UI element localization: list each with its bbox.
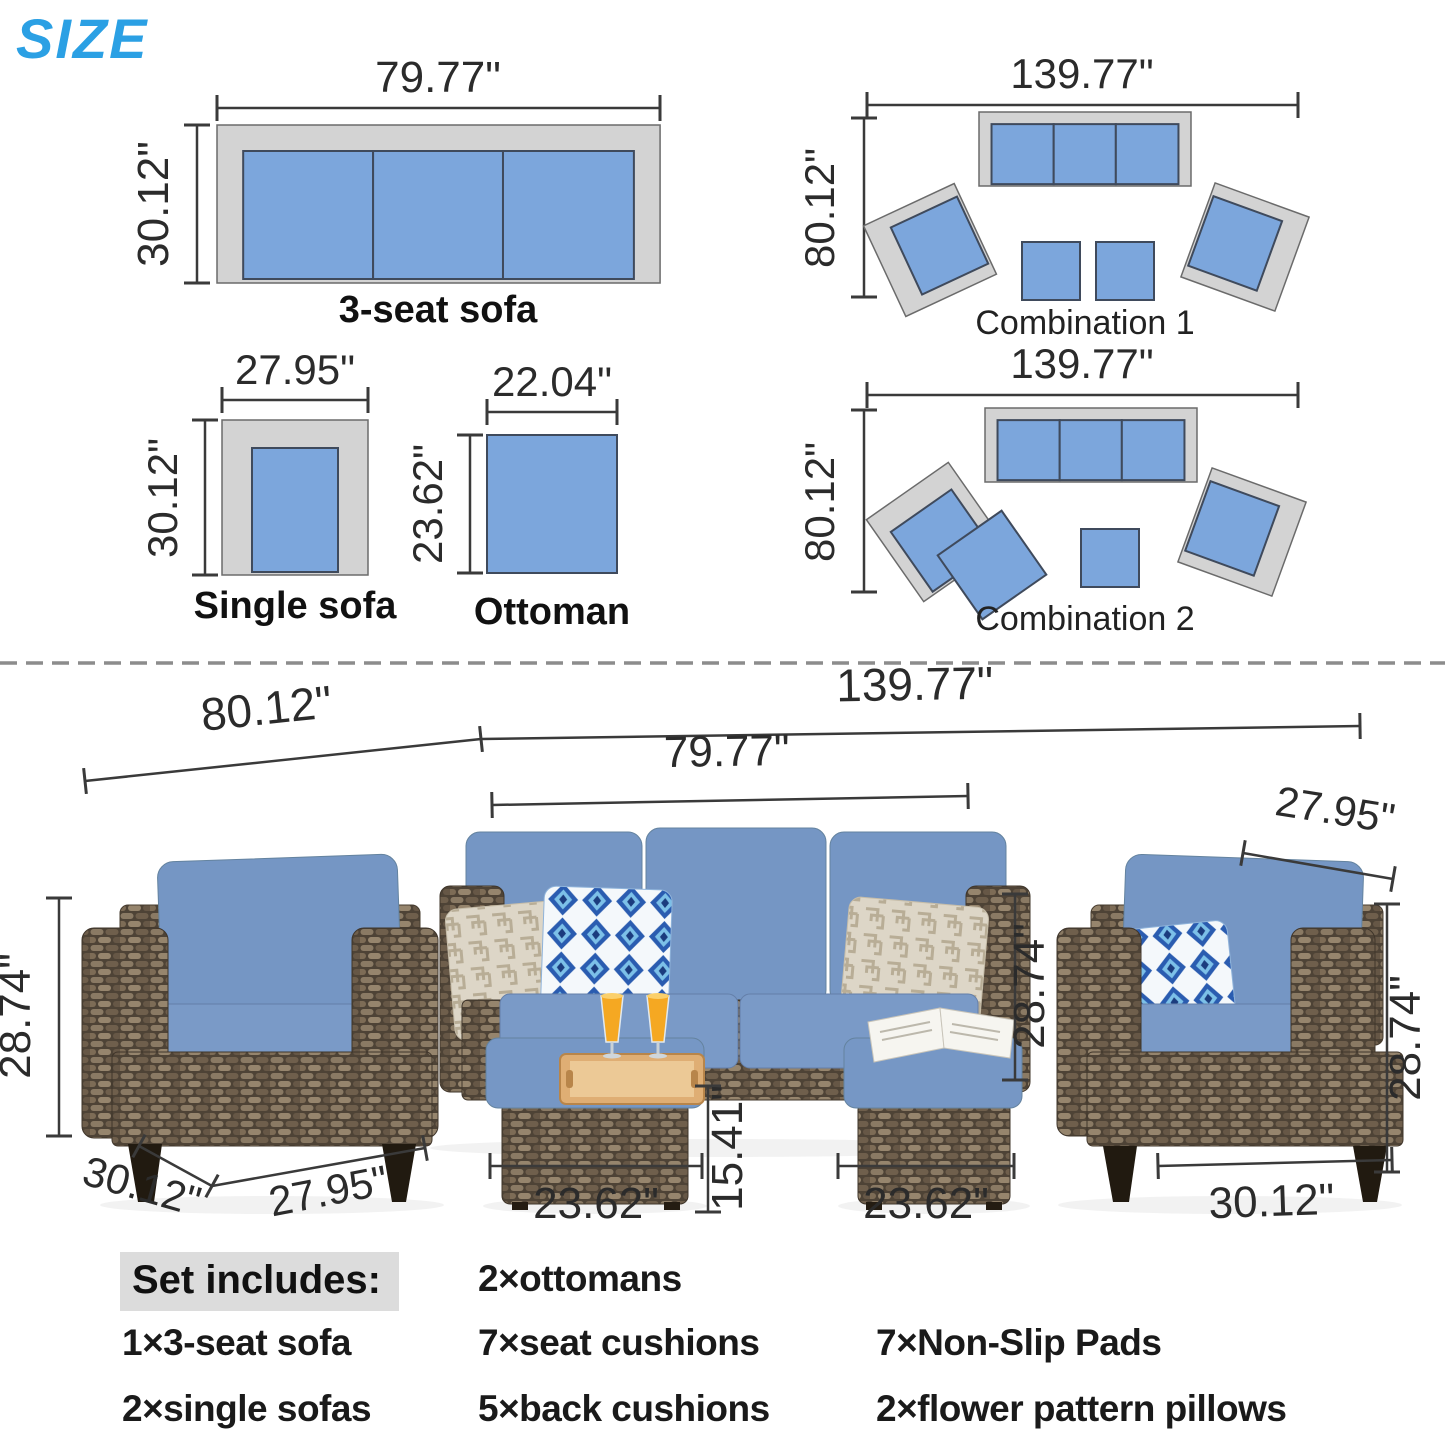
- diagram-ottoman: 22.04" 23.62" Ottoman: [404, 358, 630, 633]
- combo2-width-label: 139.77": [1010, 340, 1153, 387]
- dim-sofa-width: 79.77": [663, 726, 790, 777]
- dim-left-chair-height: 28.74": [0, 953, 40, 1079]
- diagram-3-seat-sofa: 79.77" 30.12" 3-seat sofa: [129, 53, 660, 331]
- set-includes-item-single-sofas: 2×single sofas: [122, 1388, 371, 1430]
- dim-ottoman1-width: 23.62": [533, 1179, 659, 1228]
- dim-right-chair-height: 28.74": [1381, 975, 1430, 1101]
- combo1-name: Combination 1: [975, 304, 1194, 342]
- set-includes-heading: Set includes:: [120, 1252, 399, 1311]
- dim-total-width: 139.77": [836, 657, 994, 712]
- dim-ottoman2-width: 23.62": [863, 1179, 989, 1228]
- dim-ottoman-height: 15.41": [703, 1085, 752, 1211]
- set-includes-item-non-slip-pads: 7×Non-Slip Pads: [876, 1322, 1161, 1364]
- dim-left-chair-width: 27.95": [265, 1156, 392, 1225]
- single-width-label: 27.95": [235, 346, 355, 393]
- sofa3-depth-label: 30.12": [129, 141, 178, 267]
- dim-right-chair-width: 27.95": [1272, 777, 1398, 842]
- single-depth-label: 30.12": [139, 438, 186, 558]
- size-diagram-canvas: 79.77" 30.12" 3-seat sofa 27.95" 30.12" …: [0, 0, 1445, 1445]
- set-includes-item-flower-pillows: 2×flower pattern pillows: [876, 1388, 1287, 1430]
- set-includes-item-back-cushions: 5×back cushions: [478, 1388, 770, 1430]
- ottoman-name: Ottoman: [474, 591, 630, 633]
- sofa3-name: 3-seat sofa: [339, 289, 538, 331]
- single-name: Single sofa: [194, 585, 398, 627]
- set-includes-item-seat-cushions: 7×seat cushions: [478, 1322, 759, 1364]
- diagram-single-sofa: 27.95" 30.12" Single sofa: [139, 346, 397, 627]
- dim-group-width: 80.12": [198, 675, 334, 740]
- ottoman-depth-label: 23.62": [404, 444, 451, 564]
- diagram-combination-2: 139.77" 80.12" Combination 2: [796, 340, 1306, 638]
- combo1-depth-label: 80.12": [796, 148, 843, 268]
- sofa3-width-label: 79.77": [375, 53, 501, 102]
- dim-right-chair-depth: 30.12": [1208, 1175, 1335, 1228]
- combo2-depth-label: 80.12": [796, 442, 843, 562]
- diagram-combination-1: 139.77" 80.12" Combination 1: [796, 50, 1309, 342]
- serving-tray: [560, 1054, 704, 1104]
- set-includes-item-ottomans: 2×ottomans: [478, 1258, 682, 1300]
- set-includes-item-3-seat-sofa: 1×3-seat sofa: [122, 1322, 351, 1364]
- ottoman-width-label: 22.04": [492, 358, 612, 405]
- dim-sofa-height: 28.74": [1005, 923, 1054, 1049]
- combo2-name: Combination 2: [975, 600, 1194, 638]
- combo1-width-label: 139.77": [1010, 50, 1153, 97]
